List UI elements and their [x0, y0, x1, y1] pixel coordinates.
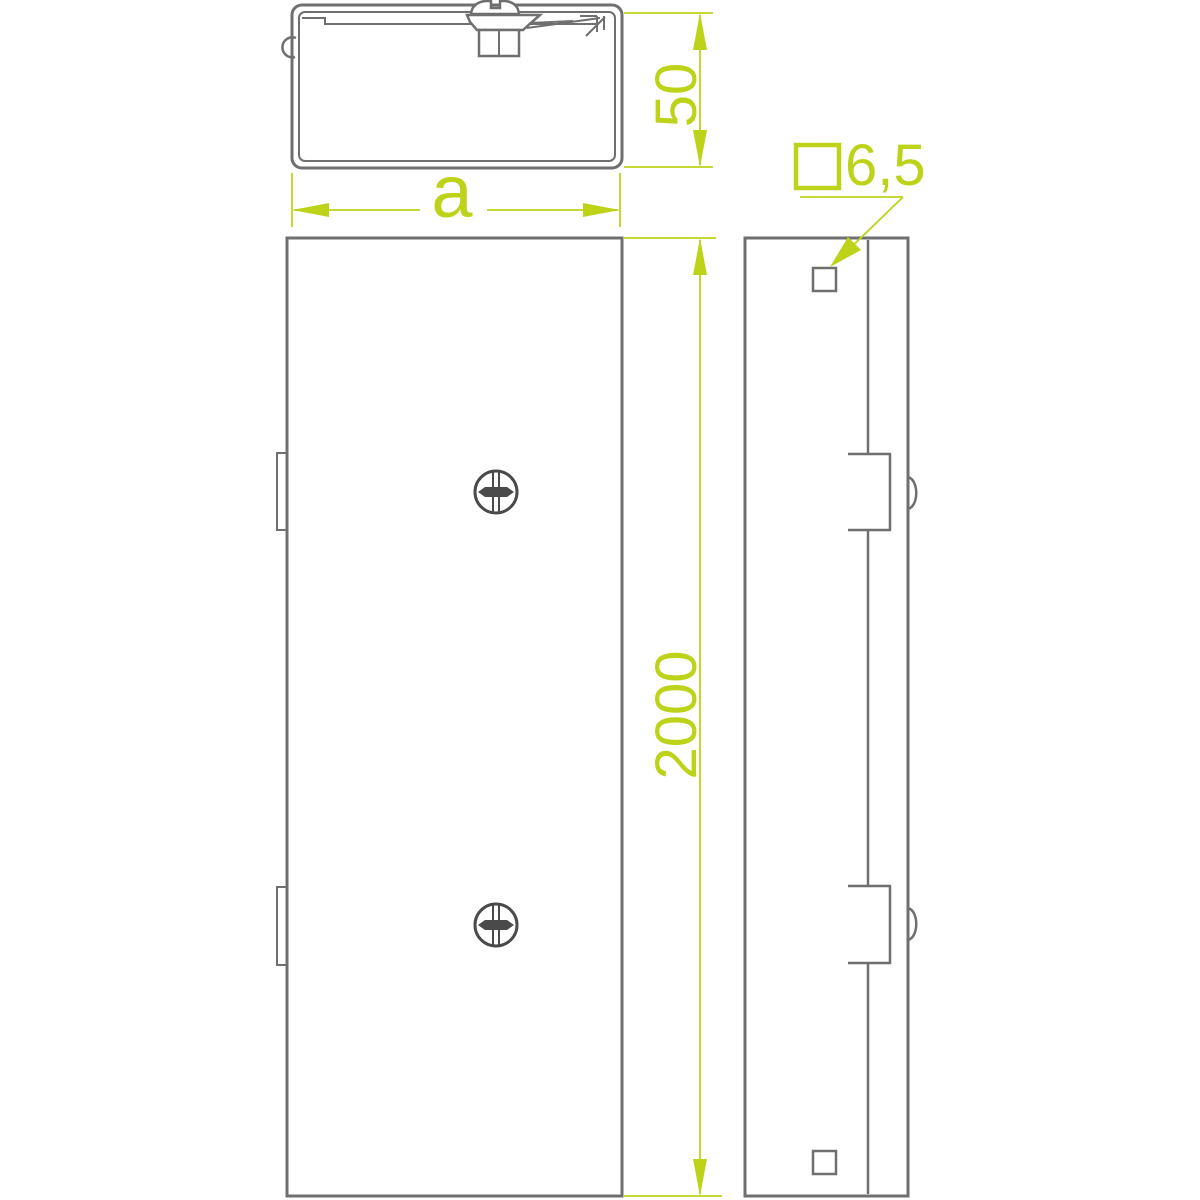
phillips-screw-icon [475, 471, 517, 513]
dimension-width-label: a [431, 150, 473, 233]
arrowhead-icon [693, 13, 707, 50]
dimension-height-label: 50 [644, 63, 709, 128]
arrowhead-icon [292, 203, 329, 217]
square-hole-lower [813, 1151, 836, 1174]
arrowhead-icon [583, 203, 620, 217]
dimension-profile-height: 50 [624, 13, 713, 167]
dimension-length-label: 2000 [644, 650, 709, 779]
phillips-screw-icon [475, 904, 517, 946]
arrowhead-icon [693, 1159, 707, 1196]
side-body [745, 238, 908, 1196]
cross-section-view [282, 1, 622, 168]
screw-cross-bar [478, 920, 514, 930]
square-hole-upper [813, 268, 836, 291]
side-view [745, 238, 916, 1196]
hole-size-label: 6,5 [845, 133, 926, 198]
screw-cross-bar [478, 487, 514, 497]
arrowhead-icon [693, 238, 707, 275]
square-symbol [796, 145, 839, 188]
latch-head-dome [471, 1, 519, 14]
cover-face [287, 238, 622, 1196]
dimension-length: 2000 [624, 238, 722, 1196]
duct-cover-drawing: 50 a 2 [0, 0, 1200, 1200]
profile-outer-wall [292, 5, 622, 168]
technical-drawing-canvas: 50 a 2 [0, 0, 1200, 1200]
arrowhead-icon [693, 130, 707, 167]
front-view [277, 238, 622, 1196]
